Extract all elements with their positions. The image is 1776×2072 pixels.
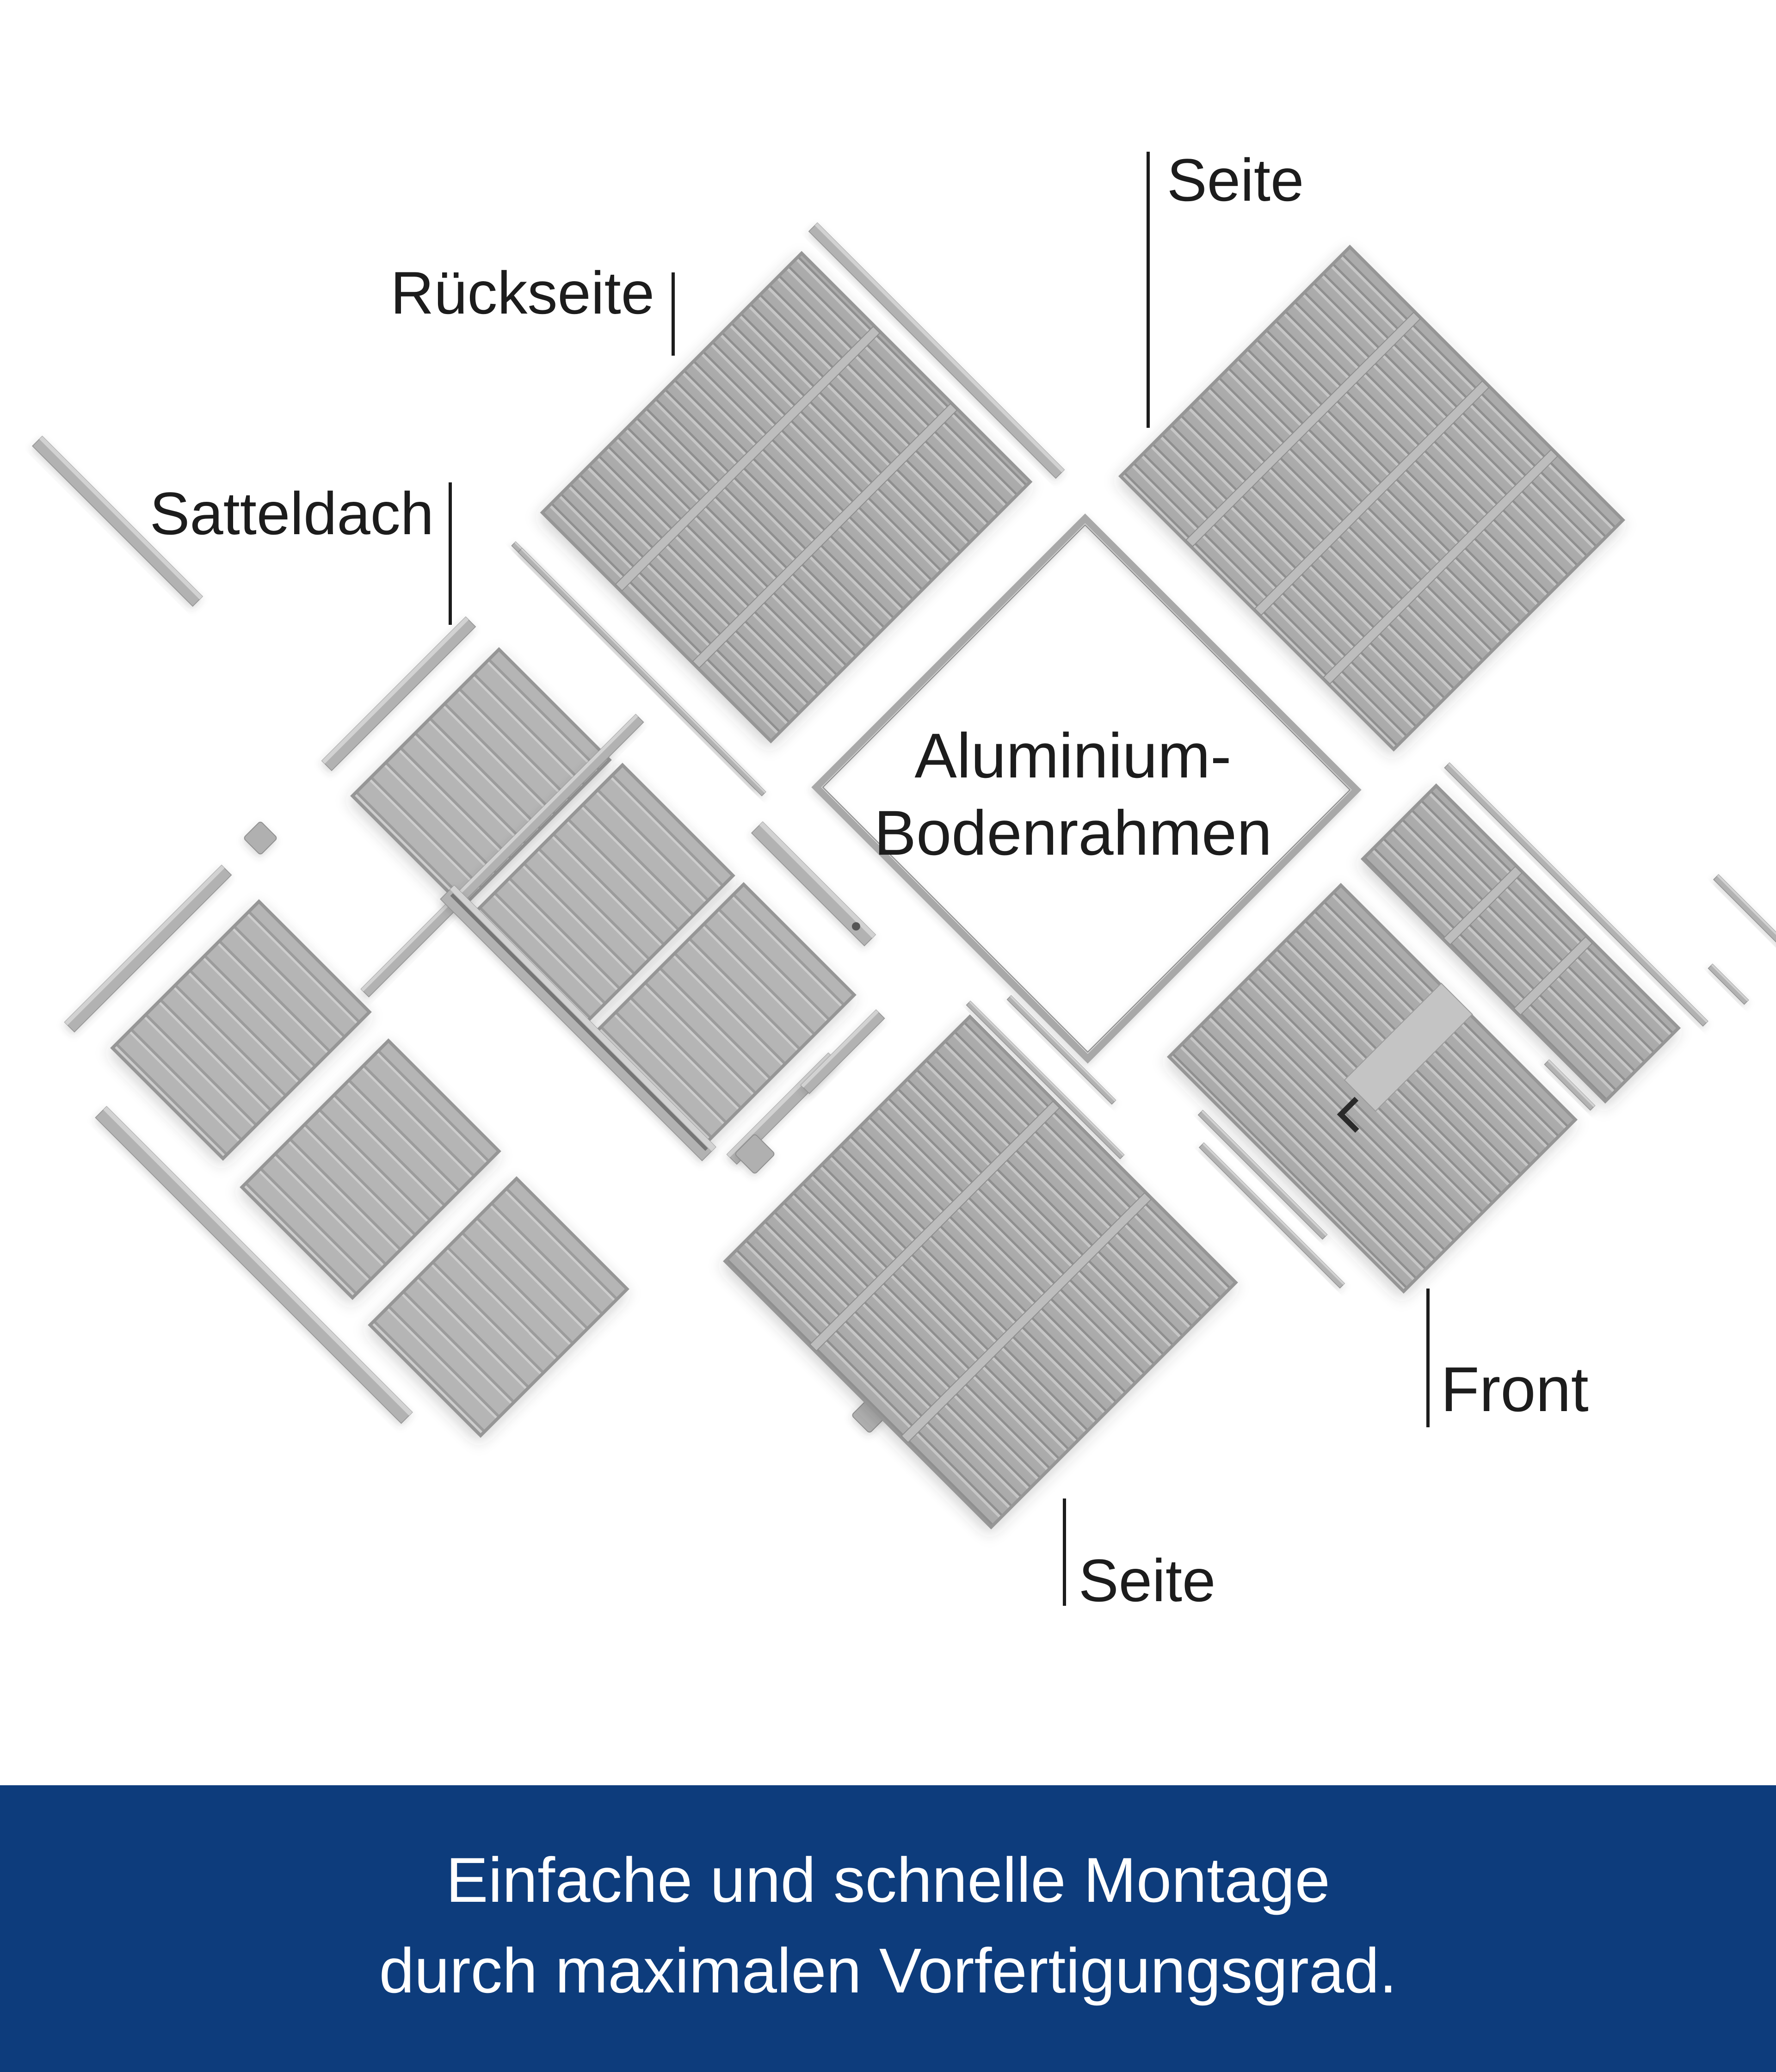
svg-text:Rückseite: Rückseite bbox=[390, 259, 654, 327]
svg-text:Seite: Seite bbox=[1167, 146, 1304, 214]
svg-text:Aluminium-: Aluminium- bbox=[914, 721, 1231, 791]
svg-text:Bodenrahmen: Bodenrahmen bbox=[874, 798, 1272, 869]
svg-text:Satteldach: Satteldach bbox=[150, 480, 434, 547]
svg-text:Front: Front bbox=[1441, 1354, 1589, 1425]
svg-text:Seite: Seite bbox=[1079, 1547, 1215, 1614]
svg-text:durch maximalen Vorfertigungsg: durch maximalen Vorfertigungsgrad. bbox=[379, 1936, 1397, 2006]
svg-text:Einfache und schnelle Montage: Einfache und schnelle Montage bbox=[446, 1845, 1330, 1916]
